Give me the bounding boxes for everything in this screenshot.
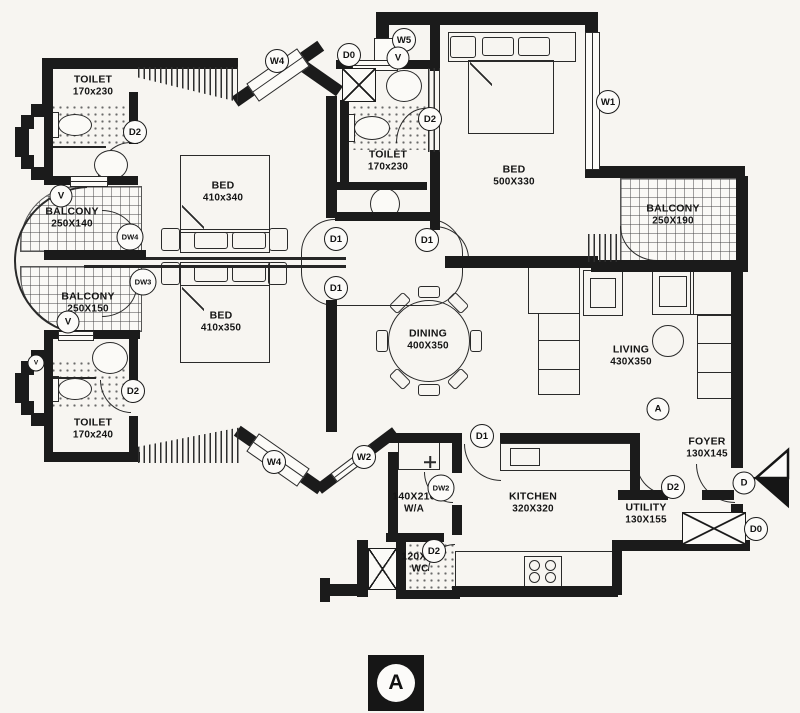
wall-segment bbox=[335, 182, 427, 190]
wall-segment bbox=[585, 166, 745, 178]
bay-step bbox=[15, 373, 29, 403]
plan-tag-d1: D1 bbox=[470, 424, 494, 448]
room-label-bed: BED410x340 bbox=[203, 181, 243, 204]
plan-tag-v: V bbox=[28, 355, 45, 372]
pillow bbox=[194, 265, 228, 282]
wall-segment bbox=[452, 586, 618, 597]
pillow bbox=[482, 37, 514, 56]
shaft bbox=[368, 548, 397, 590]
pillow bbox=[232, 265, 266, 282]
plan-tag-d1: D1 bbox=[324, 276, 348, 300]
toilet-wc bbox=[58, 114, 92, 136]
bed-fold bbox=[182, 287, 204, 311]
floor-plan: A TOILET170x230BALCONY250X140BALCONY250X… bbox=[0, 0, 800, 713]
room-label-toilet: TOILET170x230 bbox=[368, 150, 408, 173]
wall-segment bbox=[736, 176, 748, 268]
shaft bbox=[682, 512, 746, 545]
plan-tag-a: A bbox=[647, 398, 670, 421]
plan-tag-d2: D2 bbox=[123, 120, 147, 144]
plan-tag-d0: D0 bbox=[337, 43, 361, 67]
plan-tag-v: V bbox=[387, 47, 410, 70]
plan-tag-w4: W4 bbox=[265, 49, 289, 73]
wall-segment bbox=[430, 150, 440, 230]
bedroom-partition-line bbox=[84, 265, 346, 268]
wall-segment bbox=[326, 300, 337, 432]
wall-segment bbox=[396, 590, 460, 599]
washbasin bbox=[92, 342, 128, 374]
plan-tag-d2: D2 bbox=[422, 539, 446, 563]
washing-machine-mark bbox=[424, 456, 436, 468]
pillow bbox=[194, 232, 228, 249]
sofa bbox=[538, 313, 580, 395]
stove-burner bbox=[545, 572, 556, 583]
wall-segment bbox=[44, 452, 140, 462]
wall-segment bbox=[452, 433, 462, 473]
stove-burner bbox=[529, 560, 540, 571]
plan-tag-dw3: DW3 bbox=[130, 269, 157, 296]
room-label-foyer: FOYER130X145 bbox=[686, 437, 727, 460]
wall-segment bbox=[44, 250, 146, 260]
section-marker-letter: A bbox=[377, 664, 415, 702]
stove-burner bbox=[545, 560, 556, 571]
bay-step bbox=[15, 127, 29, 157]
pillow bbox=[518, 37, 550, 56]
armchair-cushion bbox=[659, 276, 687, 307]
side-table bbox=[161, 228, 180, 251]
side-table bbox=[450, 36, 476, 58]
wall-segment bbox=[618, 490, 668, 500]
section-marker: A bbox=[368, 655, 424, 711]
room-label-dining: DINING400X350 bbox=[407, 329, 448, 352]
dining-chair bbox=[470, 330, 482, 352]
wall-segment bbox=[452, 505, 462, 535]
washbasin bbox=[386, 70, 422, 102]
room-label-living: LIVING430X350 bbox=[610, 345, 651, 368]
room-label-bed: BED500X330 bbox=[493, 165, 534, 188]
plan-tag-d1: D1 bbox=[324, 227, 348, 251]
entrance-arrow bbox=[752, 446, 792, 510]
wall-segment bbox=[702, 490, 734, 500]
plan-tag-d2: D2 bbox=[418, 107, 442, 131]
armchair-cushion bbox=[590, 278, 616, 308]
hatched-wall bbox=[588, 234, 618, 262]
pillow bbox=[232, 232, 266, 249]
room-label-toilet: TOILET170x240 bbox=[73, 418, 113, 441]
kitchen-sink bbox=[510, 448, 540, 466]
wall-segment bbox=[326, 584, 368, 596]
wall-segment bbox=[44, 96, 53, 180]
dining-chair bbox=[418, 384, 440, 396]
wall-segment bbox=[630, 433, 640, 493]
plan-tag-d2: D2 bbox=[121, 379, 145, 403]
toilet-wc bbox=[354, 116, 390, 140]
dining-chair bbox=[418, 286, 440, 298]
wall-segment bbox=[335, 212, 430, 221]
plan-tag-w1: W1 bbox=[596, 90, 620, 114]
wall-segment bbox=[326, 96, 337, 218]
side-table bbox=[269, 228, 288, 251]
plan-tag-dw2: DW2 bbox=[428, 475, 455, 502]
plan-tag-d1: D1 bbox=[415, 228, 439, 252]
room-label-balcony: BALCONY250X140 bbox=[45, 207, 98, 230]
plan-tag-dw4: DW4 bbox=[117, 224, 144, 251]
bay-step bbox=[31, 413, 44, 426]
room-label-balcony: BALCONY250X190 bbox=[646, 204, 699, 227]
stove-burner bbox=[529, 572, 540, 583]
partition-line bbox=[48, 146, 106, 148]
wall-segment bbox=[129, 338, 138, 384]
bed-fold bbox=[182, 205, 204, 229]
wall-segment bbox=[44, 338, 53, 456]
shaft bbox=[342, 68, 376, 102]
plan-tag-d0: D0 bbox=[744, 517, 768, 541]
window bbox=[70, 176, 108, 187]
wall-segment bbox=[340, 100, 349, 184]
room-label-bed: BED410x350 bbox=[201, 311, 241, 334]
coffee-table bbox=[652, 325, 684, 357]
plan-tag-v: V bbox=[50, 185, 73, 208]
wall-segment bbox=[445, 256, 598, 268]
toilet-wc bbox=[58, 378, 92, 400]
sofa bbox=[697, 315, 733, 399]
wall-segment bbox=[378, 12, 595, 25]
wall-segment bbox=[731, 272, 743, 468]
bay-step bbox=[31, 167, 44, 180]
bed-fold bbox=[470, 62, 492, 86]
room-label-utility: UTILITY130X155 bbox=[625, 503, 666, 526]
wall-segment bbox=[320, 578, 330, 602]
plan-tag-w4: W4 bbox=[262, 450, 286, 474]
corner-table bbox=[690, 268, 736, 315]
wall-segment bbox=[585, 12, 598, 34]
dining-chair bbox=[376, 330, 388, 352]
wall-segment bbox=[129, 416, 138, 456]
plan-tag-w2: W2 bbox=[352, 445, 376, 469]
wall-segment bbox=[500, 433, 632, 443]
room-label-toilet: TOILET170x230 bbox=[73, 75, 113, 98]
room-label-kitchen: KITCHEN320X320 bbox=[509, 492, 557, 515]
plan-tag-d2: D2 bbox=[661, 475, 685, 499]
plan-tag-v: V bbox=[57, 311, 80, 334]
plan-tag-d: D bbox=[733, 472, 756, 495]
armchair bbox=[528, 266, 580, 314]
wall-segment bbox=[430, 25, 440, 71]
